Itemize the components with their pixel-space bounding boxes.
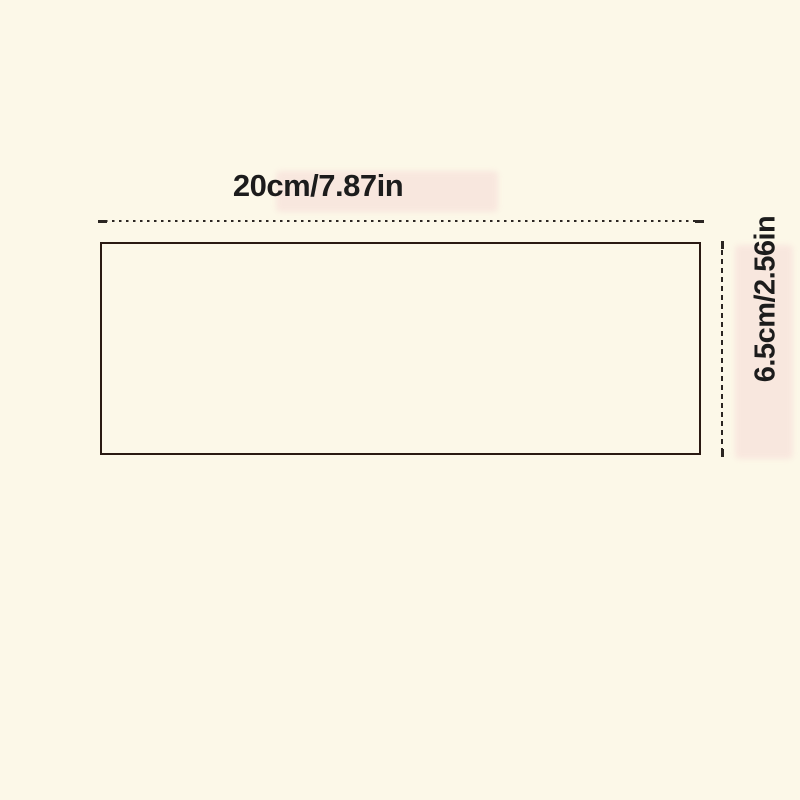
height-dimension-label: 6.5cm/2.56in	[750, 216, 783, 383]
width-dimension-line	[98, 220, 704, 222]
width-dimension-label: 20cm/7.87in	[233, 168, 403, 204]
product-outline-rectangle	[100, 242, 701, 455]
product-dimension-diagram: 20cm/7.87in 6.5cm/2.56in	[0, 0, 800, 800]
height-dimension-line	[721, 241, 723, 457]
